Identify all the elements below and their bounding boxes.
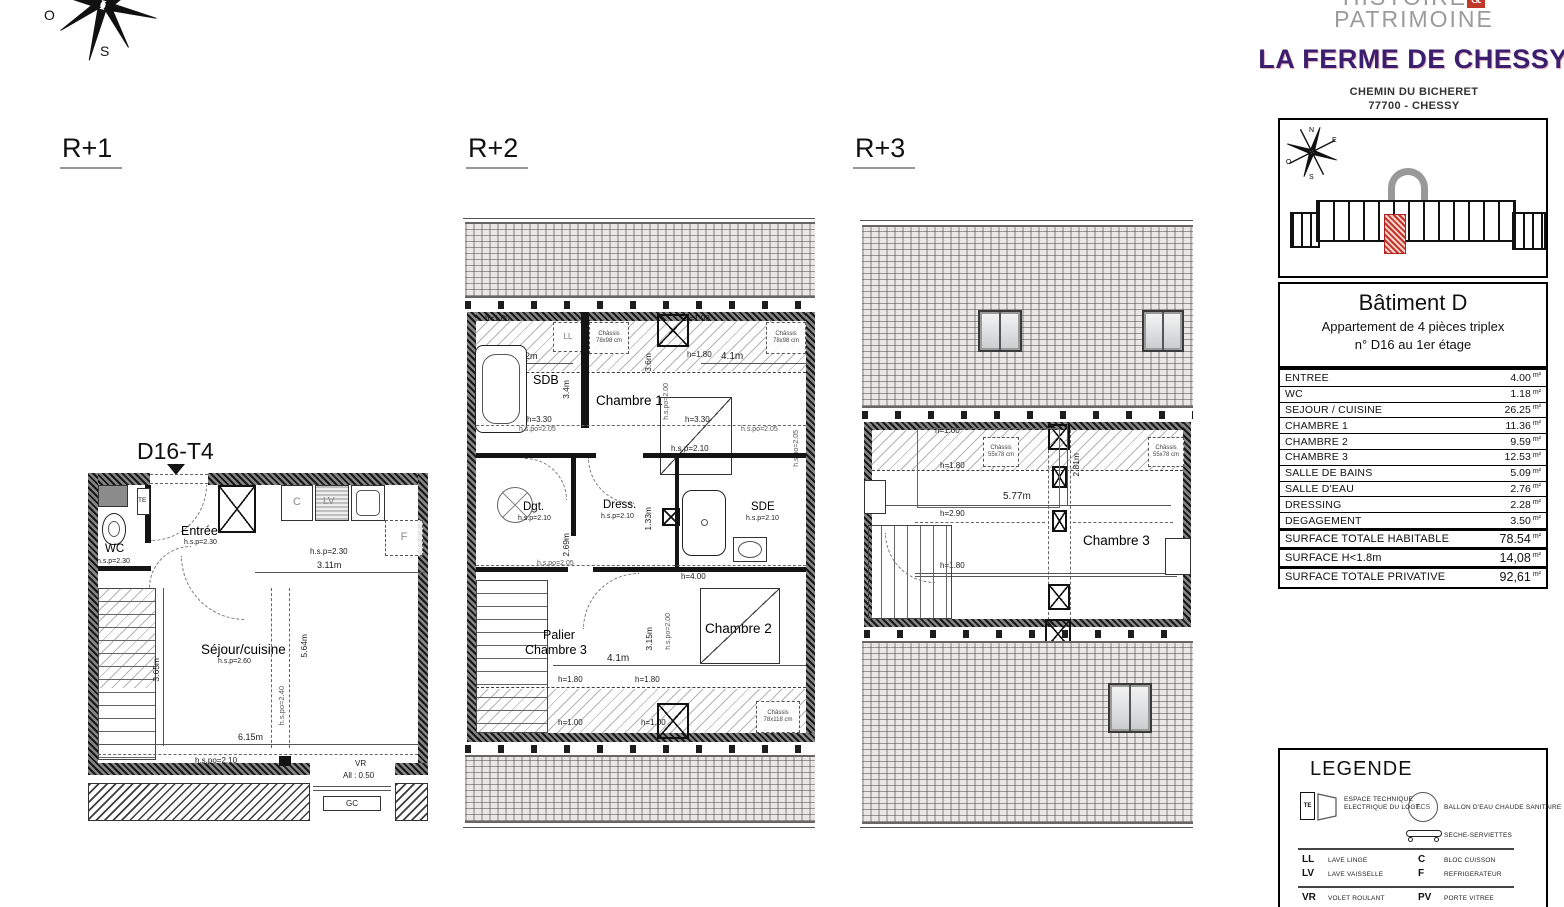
- table-row: DRESSING2.28m²: [1280, 496, 1546, 512]
- dim-line: [875, 505, 1171, 506]
- key-building-wing: [1512, 212, 1546, 250]
- cooktop-label: C: [293, 496, 301, 508]
- dim: h=1.80: [687, 351, 712, 360]
- duct-xbox: [662, 508, 680, 526]
- partition-wall: [643, 453, 806, 458]
- roof-window-icon: [1108, 683, 1152, 733]
- surface-table: ENTREE4.00m² WC1.18m² SEJOUR / CUISINE26…: [1278, 368, 1548, 589]
- beam-line: [915, 522, 1045, 523]
- legend-seche: SECHE-SERVIETTES: [1444, 832, 1512, 839]
- legend-divider: [1298, 886, 1514, 888]
- window-line: [313, 790, 391, 791]
- dim-line: [255, 572, 425, 573]
- door-arc: [583, 573, 639, 629]
- roof-window-icon: [1142, 310, 1184, 352]
- legend-abbr-f: F: [1418, 868, 1424, 879]
- dim-vr: VR: [355, 760, 366, 769]
- dim: h.s.po=2.05: [537, 560, 574, 568]
- beam-line: [289, 588, 290, 748]
- legend-divider: [1298, 848, 1514, 850]
- washbasin-bowl: [738, 541, 762, 558]
- dim: h=4.00: [681, 573, 706, 582]
- dim: h.s.po=2.05: [741, 426, 778, 434]
- wall-segment: [467, 733, 815, 742]
- roof-window-box: Châssis 78x98 cm: [589, 322, 629, 354]
- floor-label-r2: R+2: [466, 133, 528, 169]
- wall-segment: [806, 312, 815, 742]
- towel-radiator-icon: [1406, 830, 1442, 837]
- table-row: ENTREE4.00m²: [1280, 370, 1546, 386]
- te-icon: TE: [1300, 792, 1315, 820]
- plan-r1: D16-T4 TE C LV F Entrée h.s.p=2: [85, 438, 435, 833]
- key-arch: [1388, 168, 1428, 200]
- eave-line: [860, 220, 1193, 221]
- address-line2: 77700 - CHESSY: [1278, 100, 1550, 112]
- measure-outline: [917, 428, 1060, 508]
- table-row: CHAMBRE 29.59m²: [1280, 433, 1546, 449]
- dim: 4.1m: [607, 653, 629, 664]
- room-label-chambre3: Chambre 3: [1083, 533, 1150, 548]
- duct-xbox: [1048, 584, 1070, 610]
- floor-label-r1: R+1: [60, 133, 122, 169]
- room-label-chambre1: Chambre 1: [596, 393, 663, 408]
- table-row: DEGAGEMENT3.50m²: [1280, 512, 1546, 528]
- dim: h=1.80: [635, 676, 660, 685]
- dim: h.s.p=2.10: [746, 515, 779, 523]
- wall-line: [915, 576, 1177, 577]
- legend-desc-pv: PORTE VITREE: [1444, 895, 1494, 902]
- room-label-sde: SDE: [751, 501, 775, 513]
- room-label-sejour: Séjour/cuisine: [201, 642, 286, 657]
- project-title: LA FERME DE CHESSY: [1248, 44, 1564, 75]
- wall-segment: [864, 619, 1191, 627]
- radiator-wheel: [1408, 837, 1413, 842]
- washer-box: LL: [553, 322, 583, 352]
- height-limit-line: [476, 687, 806, 688]
- roof-band: [465, 222, 815, 298]
- room-label-entree: Entrée: [181, 524, 218, 538]
- partition-wall: [581, 312, 589, 428]
- svg-text:O: O: [44, 7, 55, 23]
- bed-icon: [660, 397, 732, 475]
- key-compass-icon: N E S O: [1284, 124, 1340, 180]
- legend-ecs: BALLON D'EAU CHAUDE SANITAIRE: [1444, 804, 1561, 811]
- door-arc: [588, 458, 634, 504]
- svg-text:E: E: [1332, 137, 1337, 144]
- window-line: [313, 786, 391, 787]
- dim: h.s.p=2.60: [218, 658, 251, 666]
- dim: h.s.po=2.05: [519, 426, 556, 434]
- eave-line: [463, 218, 815, 219]
- bathtub-inner: [482, 354, 520, 424]
- table-total-row: SURFACE H<1.8m14,08m²: [1280, 547, 1546, 566]
- beam-line: [476, 425, 806, 426]
- building-line3: n° D16 au 1er étage: [1280, 337, 1546, 352]
- dim: h=2.90: [940, 510, 965, 519]
- bed-icon: [700, 588, 780, 664]
- radiator-wheel: [1434, 837, 1439, 842]
- dim: 3.4m: [561, 380, 571, 399]
- legend-desc-f: REFRIGERATEUR: [1444, 871, 1502, 878]
- window-recess: [864, 480, 886, 514]
- svg-text:N: N: [1309, 127, 1314, 134]
- dim-line: [701, 363, 806, 364]
- table-row: SALLE D'EAU2.76m²: [1280, 481, 1546, 497]
- table-row: SALLE DE BAINS5.09m²: [1280, 465, 1546, 481]
- dim: h.s.po=2.00: [665, 613, 672, 650]
- partition-wall: [98, 566, 151, 571]
- legend-abbr-vr: VR: [1302, 892, 1316, 903]
- dim-gc: GC: [346, 800, 358, 809]
- legend-desc-vr: VOLET ROULANT: [1328, 895, 1385, 902]
- plan-r3: Châssis 55x78 cm Châssis 55x78 cm h=1.00…: [855, 215, 1200, 835]
- room-label-palier2: Chambre 3: [525, 643, 587, 657]
- dim: h.s.p=2.10: [518, 515, 551, 523]
- te-label: TE: [138, 497, 146, 504]
- dim: 3.65m: [151, 658, 161, 682]
- room-label-palier: Palier: [543, 628, 575, 642]
- post: [279, 756, 291, 766]
- partition-wall: [571, 458, 576, 536]
- dim: 2.81m: [1071, 453, 1081, 477]
- dishwasher-label: LV: [323, 496, 335, 507]
- entrance-opening: [150, 474, 208, 475]
- table-row: WC1.18m²: [1280, 386, 1546, 402]
- legend-desc-lv: LAVE VAISSELLE: [1328, 871, 1383, 878]
- dim: h.s.p=2.30: [97, 558, 130, 566]
- legend-desc-ll: LAVE LINGE: [1328, 857, 1367, 864]
- dim: h.s.p=2.30: [310, 548, 348, 557]
- roof-window-icon: [978, 310, 1022, 352]
- table-row: CHAMBRE 312.53m²: [1280, 449, 1546, 465]
- rafter-row: [864, 627, 1191, 641]
- dim: h.s.po=2.40: [277, 686, 286, 725]
- dim: 5.64m: [299, 634, 309, 658]
- legend-abbr-ll: LL: [1302, 854, 1314, 865]
- dim: 4.1m: [721, 351, 743, 362]
- dim: h.s.po=2.10: [195, 757, 237, 766]
- dim: h.s.p=2.30: [184, 539, 217, 547]
- floor-label-r3: R+3: [853, 133, 915, 169]
- legend-title: LEGENDE: [1310, 758, 1413, 781]
- dim: h=1.80: [558, 676, 583, 685]
- wall-segment: [88, 473, 98, 775]
- duct-xbox: [657, 703, 689, 739]
- fridge-box: F: [385, 520, 423, 556]
- room-label-sdb: SDB: [533, 373, 559, 387]
- partition-wall: [476, 567, 568, 572]
- beam-line: [271, 588, 272, 748]
- dim-line: [553, 665, 806, 666]
- ecs-icon: ECS: [1408, 792, 1438, 822]
- dim: h=1.00: [558, 719, 583, 728]
- window-recess: [1165, 538, 1191, 575]
- duct-xbox: [218, 485, 256, 533]
- svg-text:S: S: [100, 43, 109, 59]
- sink-bowl: [356, 490, 380, 516]
- dim-line: [1067, 424, 1068, 506]
- wall-segment: [1183, 422, 1191, 627]
- terrace-hatch: [395, 783, 428, 821]
- dim: 3.11m: [317, 561, 341, 571]
- rafter-row: [465, 298, 815, 312]
- svg-text:S: S: [1309, 174, 1314, 180]
- duct-xbox: [1052, 510, 1067, 532]
- building-title: Bâtiment D: [1280, 290, 1546, 316]
- wall-segment: [467, 312, 815, 321]
- dim: 3.6m: [643, 353, 653, 372]
- dim: h=1.00: [485, 315, 510, 324]
- toilet-bowl: [108, 521, 120, 537]
- roof-window-box: Châssis 78x118 cm: [756, 701, 800, 733]
- address-line1: CHEMIN DU BICHERET: [1278, 86, 1550, 98]
- entrance-opening: [150, 483, 208, 484]
- partition-wall: [476, 453, 596, 458]
- plan-sheet: O S R+1 R+2 R+3 D16-T4 TE C LV F: [0, 0, 1564, 907]
- unit-tag: D16-T4: [137, 438, 214, 465]
- logo: HISTOIRE& PATRIMOINE: [1316, 0, 1512, 30]
- table-total-row: SURFACE TOTALE PRIVATIVE92,61m²: [1280, 566, 1546, 585]
- table-total-row: SURFACE TOTALE HABITABLE78.54m²: [1280, 528, 1546, 547]
- dim: 3.15m: [644, 627, 654, 651]
- legend-abbr-pv: PV: [1418, 892, 1431, 903]
- legend-box: LEGENDE TE ESPACE TECHNIQUE ELECTRIQUE D…: [1278, 748, 1548, 907]
- legend-abbr-lv: LV: [1302, 868, 1314, 879]
- rafter-row: [862, 408, 1193, 422]
- door-arc: [181, 556, 245, 620]
- te-door-icon: [1316, 790, 1340, 822]
- stair-hatch: [98, 588, 156, 688]
- beam-line: [98, 754, 418, 755]
- title-block-panel: HISTOIRE& PATRIMOINE LA FERME DE CHESSY …: [1278, 0, 1550, 907]
- washbasin-counter: [98, 485, 128, 507]
- terrace-hatch: [88, 783, 310, 821]
- wall-segment: [395, 763, 428, 775]
- rafter-row: [465, 742, 815, 755]
- dim: 6.15m: [238, 733, 263, 743]
- eave-line: [463, 827, 815, 828]
- dim-line: [163, 588, 164, 746]
- dim: h=1.00: [685, 315, 710, 324]
- beam-line: [476, 565, 806, 566]
- table-row: SEJOUR / CUISINE26.25m²: [1280, 402, 1546, 418]
- room-label-wc: WC: [105, 543, 124, 555]
- dim: 5.77m: [1003, 491, 1031, 502]
- legend-desc-c: BLOC CUISSON: [1444, 857, 1496, 864]
- building-line2: Appartement de 4 pièces triplex: [1280, 319, 1546, 334]
- door-arc: [525, 458, 567, 500]
- wall-segment: [418, 473, 428, 775]
- eave-line: [860, 827, 1193, 828]
- legend-te-line1: ESPACE TECHNIQUE: [1344, 796, 1413, 803]
- dim: 2.69m: [561, 533, 571, 557]
- key-building-body: [1316, 200, 1516, 242]
- table-row: CHAMBRE 111.36m²: [1280, 417, 1546, 433]
- legend-abbr-c: C: [1418, 854, 1425, 865]
- roof-window-box: Châssis 78x98 cm: [766, 322, 806, 354]
- dim: h.s.po=2.05: [793, 430, 800, 467]
- dim: 1.33m: [643, 507, 653, 531]
- wall-line: [915, 573, 1177, 574]
- roof-window-box: Châssis 55x78 cm: [1148, 437, 1184, 467]
- wall-segment: [208, 473, 428, 485]
- dim-allege: All : 0.50: [343, 772, 374, 781]
- dim-line: [98, 744, 418, 745]
- shower-drain: [701, 519, 708, 526]
- key-plan-box: N E S O: [1278, 118, 1548, 278]
- key-building-wing: [1290, 212, 1320, 248]
- fridge-label: F: [401, 531, 408, 545]
- key-unit-highlight: [1384, 214, 1406, 254]
- dim: h=3.30: [527, 416, 552, 425]
- dim: h=3.30: [685, 416, 710, 425]
- room-label-dgt: Dgt.: [523, 501, 544, 513]
- building-info-box: Bâtiment D Appartement de 4 pièces tripl…: [1278, 282, 1548, 368]
- logo-text-bottom: PATRIMOINE: [1334, 6, 1494, 32]
- beam-line: [1073, 522, 1173, 523]
- roof-band: [465, 755, 815, 823]
- dim: h.s.po=2.00: [663, 383, 670, 420]
- dim: h.s.p=2.10: [601, 513, 634, 521]
- compass-rose-icon: O S: [38, 0, 178, 63]
- svg-text:O: O: [1286, 159, 1292, 166]
- plan-r2: LL Châssis 78x98 cm Châssis 78x98 cm h=1…: [463, 215, 818, 835]
